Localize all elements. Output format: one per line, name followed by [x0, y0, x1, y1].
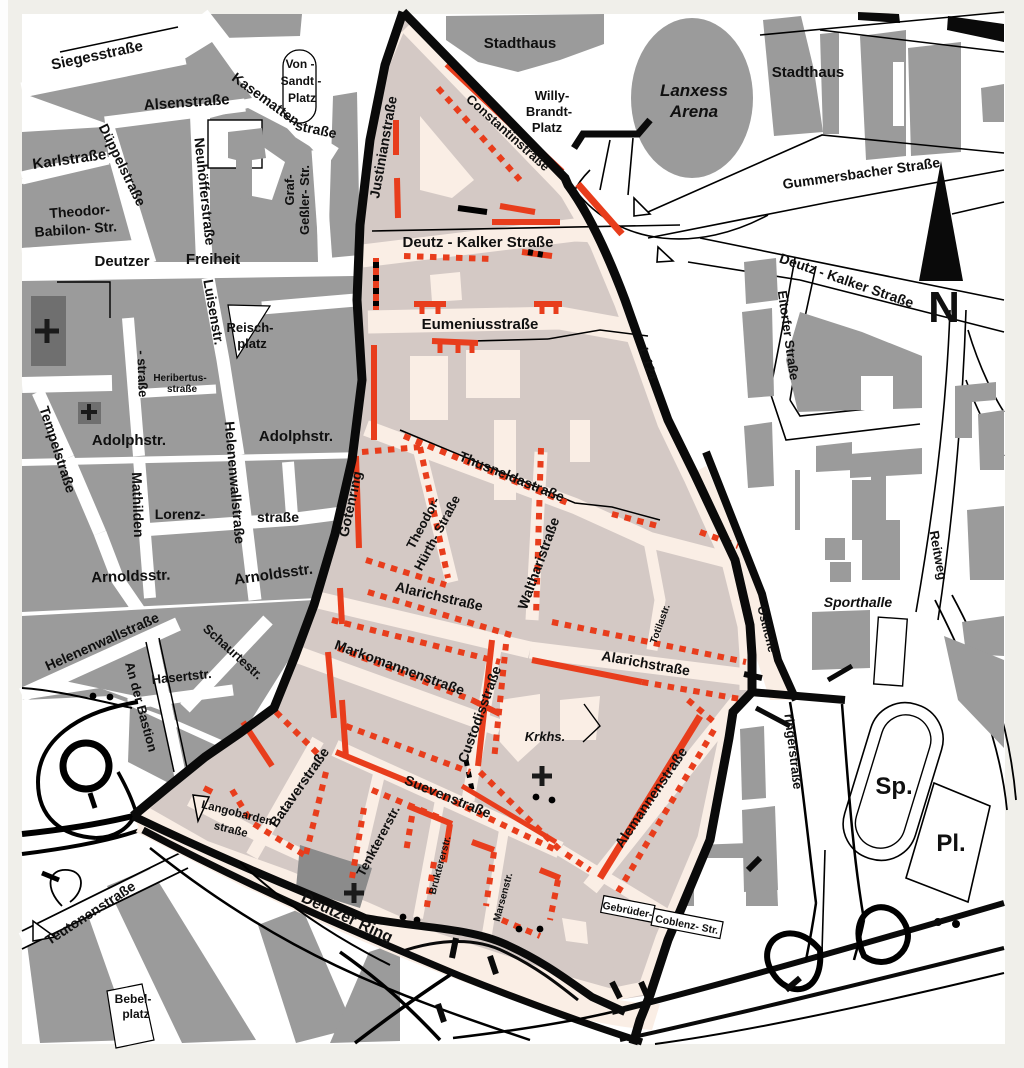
svg-text:Reisch-: Reisch- — [227, 320, 274, 335]
svg-text:Platz: Platz — [288, 91, 316, 105]
svg-text:Platz: Platz — [532, 120, 563, 135]
svg-text:Stadthaus: Stadthaus — [772, 64, 845, 81]
svg-text:Adolphstr.: Adolphstr. — [92, 432, 166, 449]
svg-text:straße: straße — [257, 509, 299, 525]
svg-text:Adolphstr.: Adolphstr. — [259, 428, 333, 445]
svg-text:Willy-: Willy- — [535, 88, 570, 103]
svg-text:platz: platz — [237, 336, 267, 351]
svg-text:Pl.: Pl. — [936, 830, 965, 857]
svg-text:Freiheit: Freiheit — [186, 251, 240, 268]
svg-text:Brandt-: Brandt- — [526, 104, 572, 119]
svg-text:Deutz - Kalker Straße: Deutz - Kalker Straße — [403, 234, 554, 251]
svg-text:Heribertus-: Heribertus- — [153, 373, 206, 384]
svg-text:Geßler- Str.: Geßler- Str. — [297, 165, 312, 235]
svg-text:Sporthalle: Sporthalle — [824, 594, 893, 610]
svg-text:Sp.: Sp. — [875, 773, 912, 800]
svg-text:Arnoldsstr.: Arnoldsstr. — [91, 567, 171, 587]
svg-text:Sandt -: Sandt - — [281, 74, 322, 88]
svg-text:Stadthaus: Stadthaus — [484, 35, 557, 52]
svg-text:Lanxess: Lanxess — [660, 81, 728, 100]
svg-text:Krkhs.: Krkhs. — [525, 729, 565, 744]
svg-text:Arena: Arena — [669, 102, 718, 121]
svg-text:Lorenz-: Lorenz- — [155, 506, 206, 522]
svg-text:- straße: - straße — [134, 350, 151, 397]
svg-text:Deutzer: Deutzer — [94, 253, 149, 270]
svg-text:platz: platz — [122, 1007, 149, 1021]
svg-text:straße: straße — [167, 384, 197, 395]
svg-text:N: N — [928, 283, 960, 332]
svg-text:Von -: Von - — [285, 57, 314, 71]
svg-text:Bebel-: Bebel- — [115, 992, 152, 1006]
svg-text:Eumeniusstraße: Eumeniusstraße — [422, 316, 539, 333]
svg-text:Graf-: Graf- — [282, 174, 297, 205]
svg-text:Mathilden: Mathilden — [129, 472, 147, 538]
